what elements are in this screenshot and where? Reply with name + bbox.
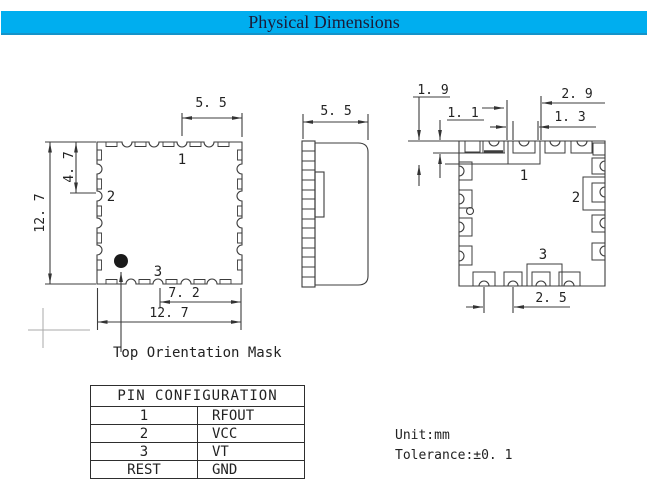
pin-table-header: PIN CONFIGURATION xyxy=(91,386,305,407)
dim-label-width-12-7: 12. 7 xyxy=(149,306,188,321)
dim-label-1-1: 1. 1 xyxy=(447,106,478,121)
dim-label-1-9: 1. 9 xyxy=(417,83,448,98)
signal-cell: VCC xyxy=(198,425,305,443)
pin-configuration-table: PIN CONFIGURATION 1 RFOUT 2 VCC 3 VT RES… xyxy=(90,385,305,479)
side-view-strip-segments xyxy=(302,151,315,277)
signal-cell: RFOUT xyxy=(198,407,305,425)
datasheet-page: Physical Dimensions xyxy=(0,0,650,497)
signal-cell: VT xyxy=(198,443,305,461)
dim-label-height-12-7: 12. 7 xyxy=(33,193,48,232)
dim-label-4-7: 4. 7 xyxy=(62,151,77,182)
unit-note: Unit:mm xyxy=(395,426,512,446)
side-view-body xyxy=(315,143,368,285)
side-view-castellation-strip xyxy=(302,141,315,287)
table-row: 3 VT xyxy=(91,443,305,461)
pin-cell: 1 xyxy=(91,407,198,425)
top-view-drawing: 5. 5 12. 7 4. 7 7. 2 12. 7 1 2 3 Top Ori… xyxy=(28,96,282,361)
table-row: 1 RFOUT xyxy=(91,407,305,425)
bottom-view-pin3-label: 3 xyxy=(539,247,547,263)
table-header-row: PIN CONFIGURATION xyxy=(91,386,305,407)
dim-label-2-5: 2. 5 xyxy=(535,291,566,306)
table-row: 2 VCC xyxy=(91,425,305,443)
tolerance-note: Tolerance:±0. 1 xyxy=(395,446,512,466)
crosshair-mark xyxy=(28,308,90,348)
bottom-view-pin2-label: 2 xyxy=(572,190,580,206)
top-view-pin2-label: 2 xyxy=(107,189,115,205)
pin-cell: 3 xyxy=(91,443,198,461)
pin-cell: REST xyxy=(91,461,198,479)
bottom-view-pin1-label: 1 xyxy=(520,168,528,184)
bottom-view-pads xyxy=(459,141,605,286)
top-view-pin3-label: 3 xyxy=(154,264,162,280)
dim-label-top-5-5: 5. 5 xyxy=(195,96,226,111)
orientation-mask-label: Top Orientation Mask xyxy=(113,345,282,361)
bottom-view-index-hole xyxy=(467,208,474,215)
dim-label-7-2: 7. 2 xyxy=(168,286,199,301)
dim-label-side-5-5: 5. 5 xyxy=(320,104,351,119)
top-view-pin1-label: 1 xyxy=(178,152,186,168)
table-row: REST GND xyxy=(91,461,305,479)
dim-label-1-3: 1. 3 xyxy=(554,110,585,125)
side-view-drawing: 5. 5 xyxy=(302,104,368,287)
bottom-view-drawing: 1. 9 1. 1 2. 9 1. 3 2. 5 1 2 3 xyxy=(408,83,605,313)
orientation-mask-dot xyxy=(114,254,128,268)
pin-cell: 2 xyxy=(91,425,198,443)
drawing-notes: Unit:mm Tolerance:±0. 1 xyxy=(395,426,512,466)
signal-cell: GND xyxy=(198,461,305,479)
dim-label-2-9: 2. 9 xyxy=(561,87,592,102)
side-view-lid-step xyxy=(315,172,324,217)
